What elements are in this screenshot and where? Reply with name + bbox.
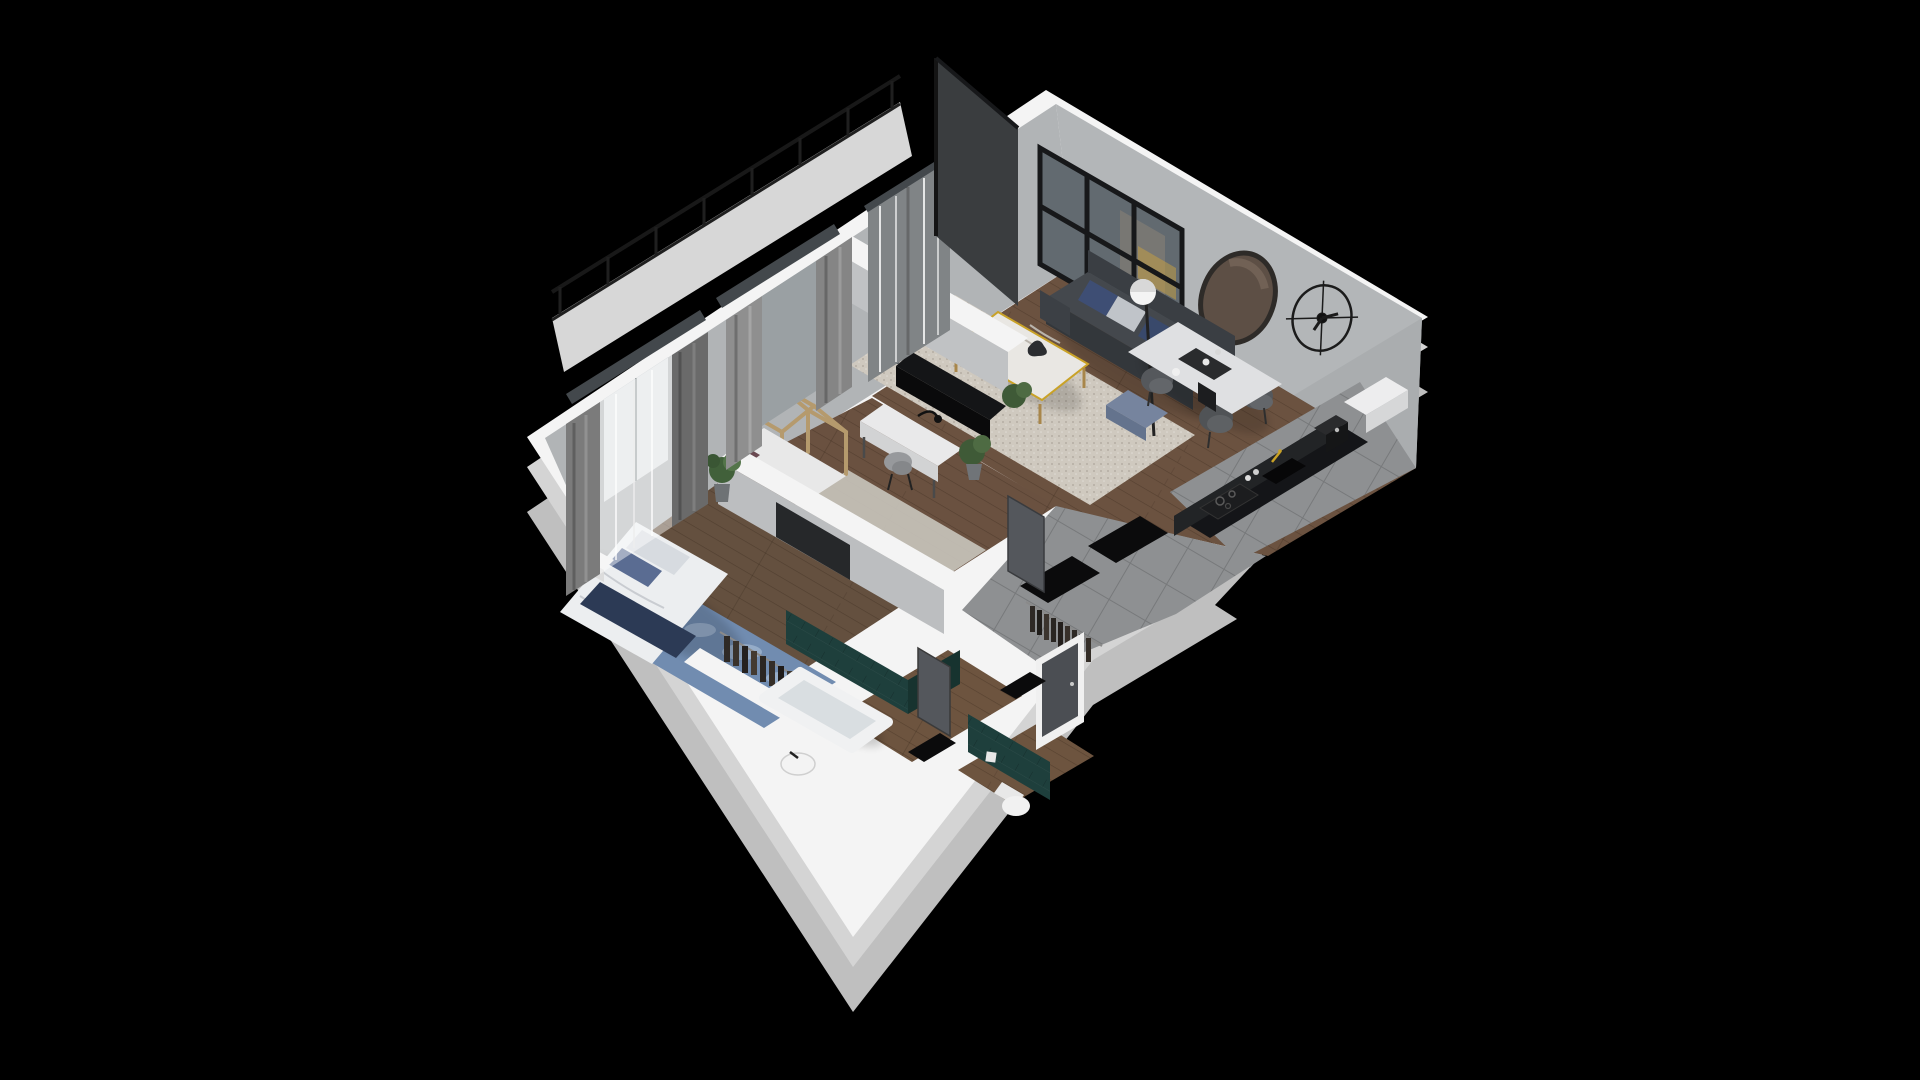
cup: [1203, 359, 1210, 366]
floor-plan-render: [0, 0, 1920, 1080]
washbasin: [781, 752, 815, 775]
desk-lamp-head: [934, 415, 942, 423]
cup: [1215, 349, 1221, 355]
kitchen-jar: [1245, 475, 1251, 481]
flush-plate: [985, 751, 996, 762]
kitchen-jar: [1253, 469, 1259, 475]
bedroom-plant-pot: [714, 484, 730, 502]
bedroom-curtain-right: [672, 332, 708, 527]
apartment-isometric-svg: [0, 0, 1920, 1080]
entry-door-handle: [1070, 682, 1074, 686]
cup: [1172, 368, 1180, 376]
